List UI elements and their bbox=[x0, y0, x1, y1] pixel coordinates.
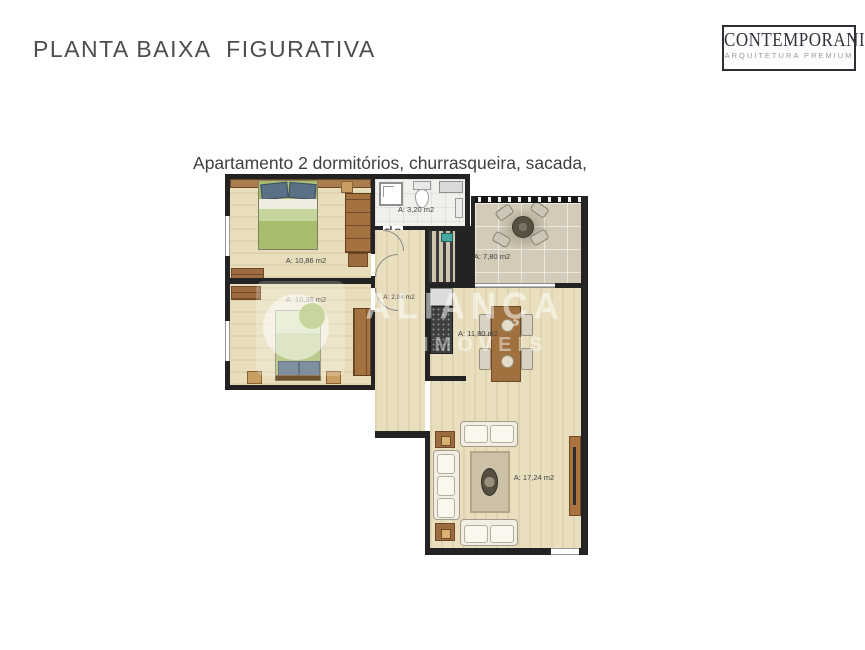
floor-plan: A: 10,86 m2 A: 10,36 m2 A: 3,20 m2 A: 7,… bbox=[225, 174, 591, 556]
dining-chair-right-2 bbox=[521, 348, 533, 370]
sofa-top bbox=[460, 421, 518, 447]
wall-bedrooms-right-c bbox=[371, 310, 375, 390]
page-title: PLANTA BAIXA FIGURATIVA bbox=[33, 36, 376, 63]
watermark-logo-icon bbox=[263, 294, 329, 360]
wall-bathroom-bottom-a bbox=[375, 226, 383, 230]
table-plate-2 bbox=[501, 355, 514, 368]
side-table-top-decor bbox=[441, 436, 451, 446]
wall-bedrooms-right-b bbox=[371, 276, 375, 288]
side-table-bottom bbox=[435, 523, 455, 541]
bedroom-1-wall-marker bbox=[341, 181, 353, 193]
balcony-area-label: A: 7,80 m2 bbox=[457, 252, 527, 261]
sofa-left-cushion-1 bbox=[437, 454, 455, 474]
wall-bathroom-right bbox=[465, 174, 470, 230]
wall-hall-kitchen bbox=[425, 283, 430, 381]
tv-icon bbox=[573, 447, 576, 505]
bedroom-1-wardrobe bbox=[345, 193, 371, 253]
dining-chair-right-1 bbox=[521, 314, 533, 336]
wall-right bbox=[581, 196, 588, 555]
living-area-label: A: 17,24 m2 bbox=[499, 473, 569, 482]
bedroom-1-window bbox=[225, 216, 230, 256]
side-table-bottom-decor bbox=[441, 529, 451, 539]
balcony-railing bbox=[471, 196, 588, 203]
dining-chair-left-2 bbox=[479, 348, 491, 370]
bed-1-pillow-left bbox=[260, 182, 289, 201]
balcony-sliding-door bbox=[475, 283, 555, 288]
sofa-bottom bbox=[460, 519, 518, 546]
living-window bbox=[551, 548, 579, 555]
coffee-table bbox=[481, 468, 498, 496]
side-table-top bbox=[435, 431, 455, 448]
sofa-bottom-cushion-2 bbox=[490, 525, 514, 543]
shower-drain bbox=[383, 186, 394, 197]
churrasqueira-sink bbox=[441, 233, 453, 242]
watermark-logo-notch bbox=[299, 303, 325, 329]
bathroom-column bbox=[455, 198, 463, 218]
bed-1-duvet-top bbox=[259, 209, 317, 221]
logo-name: CONTEMPORANI bbox=[724, 29, 854, 52]
sofa-bottom-cushion-1 bbox=[464, 525, 488, 543]
wall-living-left bbox=[425, 431, 430, 555]
dining-table bbox=[491, 306, 521, 382]
balcony-round-table bbox=[512, 216, 534, 238]
description-line-1: Apartamento 2 dormitórios, churrasqueira… bbox=[130, 152, 650, 175]
wall-kitchen-living-stub bbox=[430, 376, 466, 381]
bedroom-1-cabinet bbox=[348, 253, 368, 267]
architect-logo: CONTEMPORANI ARQUITETURA PREMIUM bbox=[722, 25, 856, 71]
wall-hall-slats bbox=[425, 230, 428, 283]
bedroom-2-window bbox=[225, 321, 230, 361]
wall-top bbox=[225, 174, 470, 179]
wall-balcony-left bbox=[471, 196, 475, 288]
wall-kitchen-top-b bbox=[555, 283, 582, 288]
kitchen-sink-unit bbox=[430, 288, 453, 306]
wall-hall-bottom bbox=[375, 431, 430, 438]
shower-box bbox=[379, 182, 403, 206]
sofa-top-cushion-2 bbox=[490, 425, 514, 443]
wall-bedrooms-bottom bbox=[225, 385, 375, 390]
wall-kitchen-top-a bbox=[425, 283, 475, 288]
bedroom-2-wardrobe bbox=[353, 308, 371, 376]
sofa-top-cushion-1 bbox=[464, 425, 488, 443]
sofa-left-cushion-3 bbox=[437, 498, 455, 518]
bathroom-sink bbox=[439, 181, 463, 193]
tv-rack bbox=[569, 436, 581, 516]
bed-1-pillow-right bbox=[288, 182, 316, 200]
sofa-left bbox=[433, 450, 460, 520]
wall-bedrooms-right-a bbox=[371, 174, 375, 254]
bathroom-area-label: A: 3,20 m2 bbox=[377, 205, 455, 214]
kitchen-area-label: A: 11,80 m2 bbox=[443, 329, 513, 338]
bed-1 bbox=[258, 180, 318, 250]
hall-area-label: A: 2,04 m2 bbox=[373, 294, 425, 301]
logo-tagline: ARQUITETURA PREMIUM bbox=[724, 51, 854, 60]
sofa-left-cushion-2 bbox=[437, 476, 455, 496]
bedroom-1-area-label: A: 10,86 m2 bbox=[263, 256, 349, 265]
bed-1-sheet-fold bbox=[259, 199, 317, 209]
